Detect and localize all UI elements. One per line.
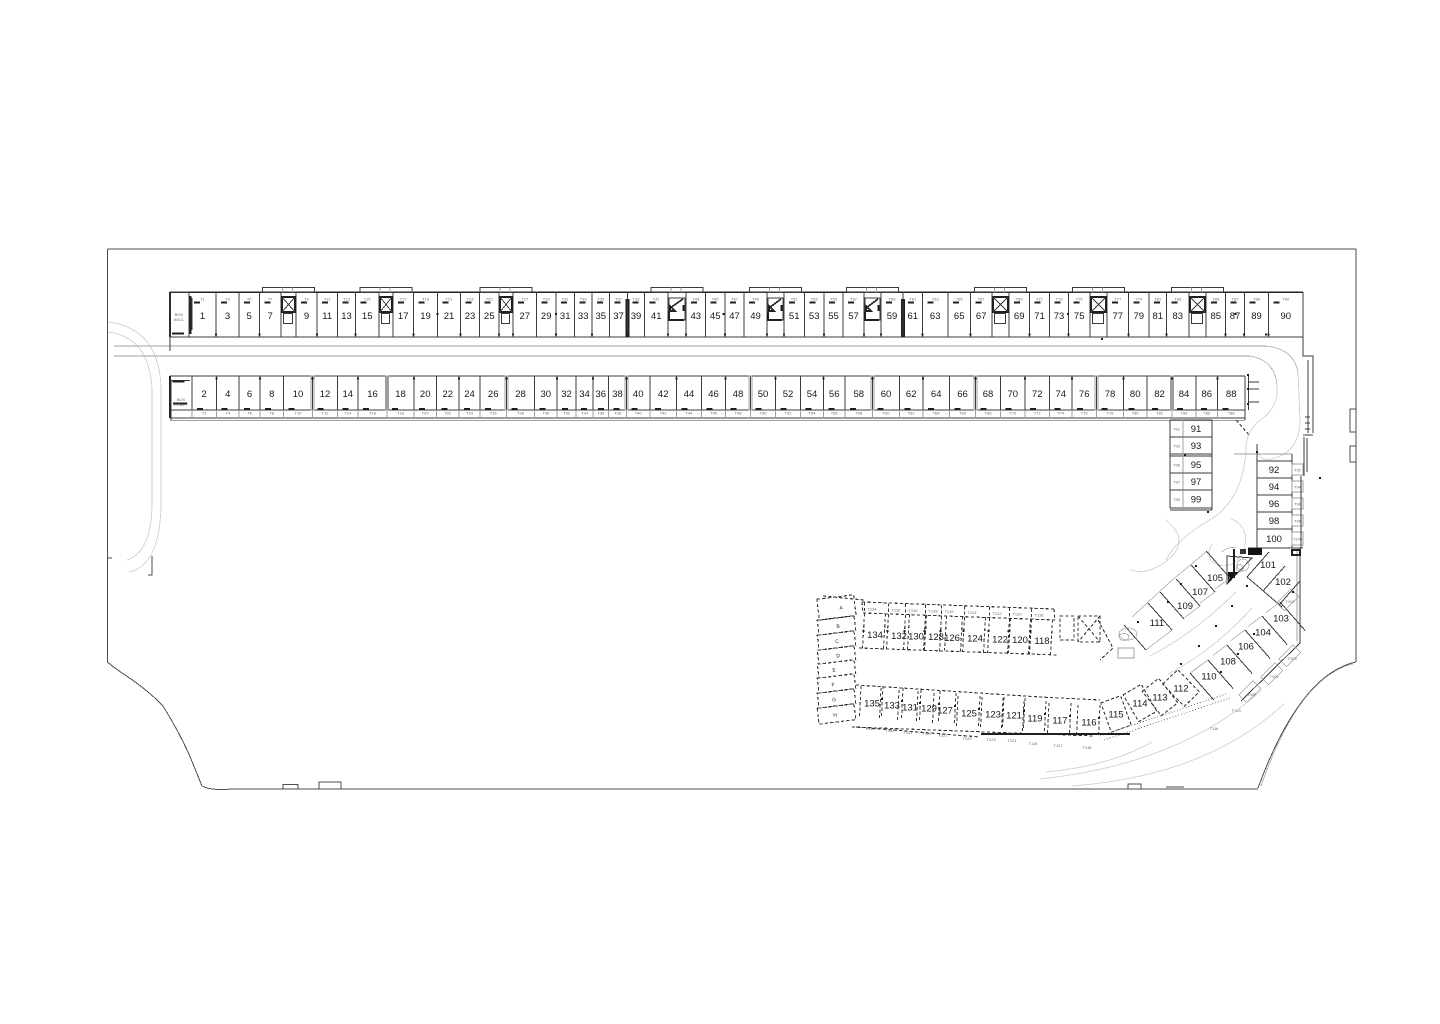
svg-text:87: 87 <box>1230 311 1241 322</box>
svg-text:T116: T116 <box>1083 745 1093 750</box>
svg-text:74: 74 <box>1056 389 1067 400</box>
svg-text:T37: T37 <box>615 297 623 302</box>
svg-text:128: 128 <box>928 632 944 643</box>
svg-text:24: 24 <box>464 389 475 400</box>
svg-text:76: 76 <box>1079 389 1090 400</box>
svg-text:25: 25 <box>484 311 495 322</box>
svg-text:130: 130 <box>908 632 924 643</box>
svg-text:T10: T10 <box>295 411 303 416</box>
svg-text:T3: T3 <box>225 297 230 302</box>
svg-text:T42: T42 <box>660 411 668 416</box>
svg-text:78: 78 <box>1105 389 1116 400</box>
svg-text:114: 114 <box>1132 699 1147 710</box>
svg-text:T19: T19 <box>422 297 430 302</box>
svg-text:44: 44 <box>684 389 695 400</box>
svg-text:T40: T40 <box>635 411 643 416</box>
svg-text:14: 14 <box>343 389 354 400</box>
svg-text:117: 117 <box>1052 716 1067 727</box>
svg-text:T104: T104 <box>1269 674 1279 679</box>
svg-text:99: 99 <box>1191 495 1202 506</box>
svg-text:T44: T44 <box>686 411 694 416</box>
svg-text:T91: T91 <box>1173 427 1181 432</box>
svg-text:T8: T8 <box>269 411 274 416</box>
svg-text:77: 77 <box>1113 311 1124 322</box>
svg-text:T121: T121 <box>1007 738 1017 743</box>
svg-text:T54: T54 <box>809 411 817 416</box>
svg-text:T102: T102 <box>1285 599 1295 604</box>
svg-text:T25: T25 <box>486 297 494 302</box>
svg-text:T90: T90 <box>1282 297 1290 302</box>
svg-text:36: 36 <box>596 389 607 400</box>
svg-text:61: 61 <box>908 311 919 322</box>
svg-text:97: 97 <box>1191 477 1202 488</box>
svg-text:18: 18 <box>395 389 406 400</box>
svg-text:64: 64 <box>931 389 942 400</box>
svg-text:T43: T43 <box>692 297 700 302</box>
svg-text:T2: T2 <box>202 411 207 416</box>
svg-text:T62: T62 <box>908 411 916 416</box>
svg-text:7: 7 <box>268 311 273 322</box>
svg-text:108: 108 <box>1220 656 1236 667</box>
svg-text:T72: T72 <box>1034 411 1042 416</box>
svg-text:T73: T73 <box>1056 297 1064 302</box>
svg-text:20: 20 <box>420 389 431 400</box>
svg-text:T12: T12 <box>322 411 330 416</box>
svg-text:T1: T1 <box>200 297 205 302</box>
svg-text:59: 59 <box>887 311 898 322</box>
svg-text:84: 84 <box>1179 389 1190 400</box>
svg-text:131: 131 <box>902 703 918 714</box>
svg-text:125: 125 <box>961 709 977 720</box>
svg-text:23: 23 <box>465 311 476 322</box>
svg-text:122: 122 <box>992 635 1008 646</box>
svg-text:T6: T6 <box>247 411 252 416</box>
svg-text:T9: T9 <box>304 297 309 302</box>
svg-text:104: 104 <box>1255 627 1271 638</box>
svg-text:T20: T20 <box>422 411 430 416</box>
svg-text:T95: T95 <box>1173 463 1181 468</box>
svg-text:27: 27 <box>520 311 531 322</box>
svg-text:115: 115 <box>1108 710 1123 721</box>
svg-text:67: 67 <box>976 311 987 322</box>
svg-text:T26: T26 <box>490 411 498 416</box>
svg-text:91: 91 <box>1191 424 1202 435</box>
svg-text:62: 62 <box>906 389 917 400</box>
svg-text:T55: T55 <box>830 297 838 302</box>
svg-text:T11: T11 <box>324 297 331 302</box>
svg-text:120: 120 <box>1012 635 1028 646</box>
svg-text:48: 48 <box>733 389 744 400</box>
svg-text:75: 75 <box>1074 311 1085 322</box>
svg-text:112: 112 <box>1173 684 1188 695</box>
svg-text:T57: T57 <box>850 297 858 302</box>
svg-text:106: 106 <box>1238 641 1254 652</box>
svg-text:16: 16 <box>367 389 378 400</box>
svg-text:85: 85 <box>1211 311 1222 322</box>
svg-text:57: 57 <box>848 311 859 322</box>
svg-text:T30: T30 <box>542 411 550 416</box>
svg-text:T66: T66 <box>959 411 967 416</box>
svg-text:81: 81 <box>1153 311 1164 322</box>
svg-text:107: 107 <box>1192 587 1208 598</box>
svg-text:T119: T119 <box>1029 741 1039 746</box>
svg-text:T83: T83 <box>1174 297 1182 302</box>
svg-text:T71: T71 <box>1036 297 1044 302</box>
svg-text:T39: T39 <box>633 297 641 302</box>
svg-text:T87: T87 <box>1232 297 1240 302</box>
svg-text:T4: T4 <box>225 411 230 416</box>
svg-text:T120: T120 <box>1012 612 1022 617</box>
svg-text:134: 134 <box>867 630 883 641</box>
svg-text:22: 22 <box>443 389 454 400</box>
svg-text:T59: T59 <box>889 297 897 302</box>
svg-text:T117: T117 <box>1054 743 1064 748</box>
svg-text:ASCL: ASCL <box>174 317 185 322</box>
svg-text:63: 63 <box>930 311 941 322</box>
svg-text:46: 46 <box>708 389 719 400</box>
svg-text:72: 72 <box>1032 389 1043 400</box>
svg-text:T53: T53 <box>811 297 819 302</box>
svg-text:T24: T24 <box>466 411 474 416</box>
svg-text:29: 29 <box>541 311 552 322</box>
svg-text:T49: T49 <box>752 297 760 302</box>
svg-text:T52: T52 <box>785 411 793 416</box>
svg-text:60: 60 <box>881 389 892 400</box>
svg-text:T126: T126 <box>944 609 954 614</box>
svg-text:T69: T69 <box>1016 297 1024 302</box>
svg-text:T76: T76 <box>1081 411 1089 416</box>
svg-text:5: 5 <box>247 311 252 322</box>
svg-text:T13: T13 <box>343 297 351 302</box>
svg-text:T56: T56 <box>831 411 839 416</box>
svg-text:T16: T16 <box>369 411 377 416</box>
svg-text:30: 30 <box>541 389 552 400</box>
svg-text:T31: T31 <box>562 297 570 302</box>
svg-text:34: 34 <box>579 389 590 400</box>
svg-text:80: 80 <box>1130 389 1141 400</box>
svg-text:T68: T68 <box>985 411 993 416</box>
svg-text:T45: T45 <box>712 297 720 302</box>
svg-text:T86: T86 <box>1203 411 1211 416</box>
svg-text:52: 52 <box>783 389 794 400</box>
svg-text:T99: T99 <box>1173 497 1181 502</box>
svg-text:6: 6 <box>247 389 252 400</box>
svg-text:116: 116 <box>1081 718 1096 729</box>
svg-text:118: 118 <box>1034 636 1049 647</box>
svg-text:39: 39 <box>631 311 642 322</box>
svg-text:T14: T14 <box>344 411 352 416</box>
svg-text:T92: T92 <box>1294 468 1302 473</box>
svg-text:T118: T118 <box>1035 613 1045 618</box>
svg-text:T67: T67 <box>978 297 986 302</box>
svg-text:47: 47 <box>729 311 740 322</box>
svg-text:121: 121 <box>1006 711 1022 722</box>
svg-text:T46: T46 <box>710 411 718 416</box>
svg-text:13: 13 <box>341 311 352 322</box>
svg-text:T60: T60 <box>883 411 891 416</box>
svg-text:T35: T35 <box>597 297 605 302</box>
svg-text:68: 68 <box>983 389 994 400</box>
svg-text:T27: T27 <box>521 297 529 302</box>
svg-text:T36: T36 <box>597 411 605 416</box>
svg-text:43: 43 <box>691 311 702 322</box>
svg-text:T34: T34 <box>581 411 589 416</box>
svg-text:3: 3 <box>225 311 230 322</box>
svg-text:T32: T32 <box>563 411 571 416</box>
svg-text:51: 51 <box>789 311 800 322</box>
svg-text:69: 69 <box>1014 311 1025 322</box>
svg-text:111: 111 <box>1150 618 1164 629</box>
svg-text:T75: T75 <box>1076 297 1084 302</box>
svg-text:101: 101 <box>1260 560 1276 571</box>
svg-text:94: 94 <box>1269 482 1280 493</box>
svg-text:T82: T82 <box>1156 411 1164 416</box>
svg-text:50: 50 <box>758 389 769 400</box>
svg-text:38: 38 <box>612 389 623 400</box>
svg-text:129: 129 <box>921 704 937 715</box>
svg-text:17: 17 <box>398 311 409 322</box>
svg-text:100: 100 <box>1266 534 1282 545</box>
svg-text:T130: T130 <box>908 608 918 613</box>
svg-text:42: 42 <box>658 389 669 400</box>
svg-text:98: 98 <box>1269 516 1280 527</box>
svg-text:92: 92 <box>1269 465 1280 476</box>
svg-text:105: 105 <box>1207 573 1223 584</box>
svg-text:T122: T122 <box>992 611 1002 616</box>
svg-text:55: 55 <box>828 311 839 322</box>
svg-text:T84: T84 <box>1181 411 1189 416</box>
svg-text:32: 32 <box>561 389 572 400</box>
svg-text:T41: T41 <box>653 297 661 302</box>
svg-text:15: 15 <box>362 311 373 322</box>
svg-text:T28: T28 <box>517 411 525 416</box>
svg-text:86: 86 <box>1202 389 1213 400</box>
svg-text:T129: T129 <box>922 731 932 736</box>
svg-text:21: 21 <box>444 311 455 322</box>
svg-text:79: 79 <box>1134 311 1145 322</box>
svg-text:126: 126 <box>944 633 960 644</box>
svg-text:35: 35 <box>596 311 607 322</box>
svg-text:73: 73 <box>1054 311 1065 322</box>
svg-text:T22: T22 <box>444 411 452 416</box>
svg-text:T33: T33 <box>580 297 588 302</box>
svg-text:11: 11 <box>322 311 332 322</box>
svg-text:96: 96 <box>1269 499 1280 510</box>
svg-text:T132: T132 <box>891 607 901 612</box>
svg-text:T5: T5 <box>247 297 252 302</box>
svg-text:135: 135 <box>864 699 880 710</box>
svg-text:T93: T93 <box>1173 444 1181 449</box>
svg-text:65: 65 <box>954 311 965 322</box>
svg-text:40: 40 <box>633 389 644 400</box>
svg-text:26: 26 <box>488 389 499 400</box>
svg-text:110: 110 <box>1201 671 1216 682</box>
svg-text:9: 9 <box>304 311 309 322</box>
svg-text:58: 58 <box>854 389 865 400</box>
svg-text:T80: T80 <box>1132 411 1140 416</box>
svg-text:109: 109 <box>1177 601 1193 612</box>
svg-text:T7: T7 <box>268 297 273 302</box>
svg-text:88: 88 <box>1226 389 1237 400</box>
svg-text:31: 31 <box>560 311 571 322</box>
svg-text:T58: T58 <box>855 411 863 416</box>
svg-text:T61: T61 <box>909 297 917 302</box>
svg-text:90: 90 <box>1281 311 1292 322</box>
svg-text:113: 113 <box>1152 693 1167 704</box>
svg-text:T74: T74 <box>1057 411 1065 416</box>
svg-text:12: 12 <box>320 389 331 400</box>
svg-text:T51: T51 <box>791 297 799 302</box>
svg-text:T65: T65 <box>956 297 964 302</box>
svg-text:T38: T38 <box>614 411 622 416</box>
svg-text:103: 103 <box>1273 613 1289 624</box>
svg-text:66: 66 <box>957 389 968 400</box>
svg-text:T63: T63 <box>932 297 940 302</box>
svg-text:93: 93 <box>1191 441 1202 452</box>
svg-text:89: 89 <box>1251 311 1262 322</box>
svg-text:T124: T124 <box>967 610 977 615</box>
svg-text:49: 49 <box>750 311 761 322</box>
svg-text:T103: T103 <box>1287 656 1297 661</box>
svg-text:124: 124 <box>967 634 983 645</box>
svg-text:56: 56 <box>829 389 840 400</box>
svg-text:T79: T79 <box>1135 297 1143 302</box>
svg-text:123: 123 <box>985 710 1001 721</box>
svg-text:127: 127 <box>937 706 953 717</box>
svg-text:41: 41 <box>651 311 662 322</box>
svg-text:102: 102 <box>1275 577 1291 588</box>
svg-text:54: 54 <box>807 389 818 400</box>
svg-text:T77: T77 <box>1114 297 1122 302</box>
svg-text:T70: T70 <box>1009 411 1017 416</box>
svg-text:45: 45 <box>710 311 721 322</box>
svg-text:19: 19 <box>420 311 431 322</box>
svg-text:4: 4 <box>225 389 230 400</box>
svg-text:T78: T78 <box>1107 411 1115 416</box>
svg-text:T18: T18 <box>397 411 405 416</box>
svg-text:T21: T21 <box>446 297 454 302</box>
svg-text:95: 95 <box>1191 460 1202 471</box>
svg-text:T17: T17 <box>400 297 408 302</box>
svg-text:T97: T97 <box>1173 480 1181 485</box>
svg-text:T89: T89 <box>1253 297 1261 302</box>
svg-text:133: 133 <box>884 701 900 712</box>
svg-text:10: 10 <box>293 389 304 400</box>
svg-text:T29: T29 <box>543 297 551 302</box>
svg-text:T128: T128 <box>928 609 938 614</box>
svg-text:T134: T134 <box>867 606 877 611</box>
svg-text:28: 28 <box>515 389 526 400</box>
svg-text:119: 119 <box>1027 714 1042 725</box>
svg-text:T48: T48 <box>735 411 743 416</box>
svg-text:2: 2 <box>202 389 207 400</box>
svg-text:37: 37 <box>613 311 624 322</box>
svg-text:T50: T50 <box>760 411 768 416</box>
svg-text:71: 71 <box>1034 311 1045 322</box>
svg-text:53: 53 <box>809 311 820 322</box>
svg-text:T81: T81 <box>1154 297 1162 302</box>
svg-text:83: 83 <box>1173 311 1184 322</box>
svg-text:1: 1 <box>200 311 205 322</box>
svg-text:33: 33 <box>578 311 589 322</box>
svg-text:T47: T47 <box>731 297 739 302</box>
svg-text:8: 8 <box>269 389 274 400</box>
svg-text:T64: T64 <box>933 411 941 416</box>
svg-text:70: 70 <box>1008 389 1019 400</box>
svg-text:T15: T15 <box>364 297 372 302</box>
svg-text:T23: T23 <box>467 297 475 302</box>
svg-text:T88: T88 <box>1228 411 1236 416</box>
svg-text:T85: T85 <box>1212 297 1220 302</box>
svg-text:82: 82 <box>1154 389 1165 400</box>
svg-text:T123: T123 <box>986 737 996 742</box>
